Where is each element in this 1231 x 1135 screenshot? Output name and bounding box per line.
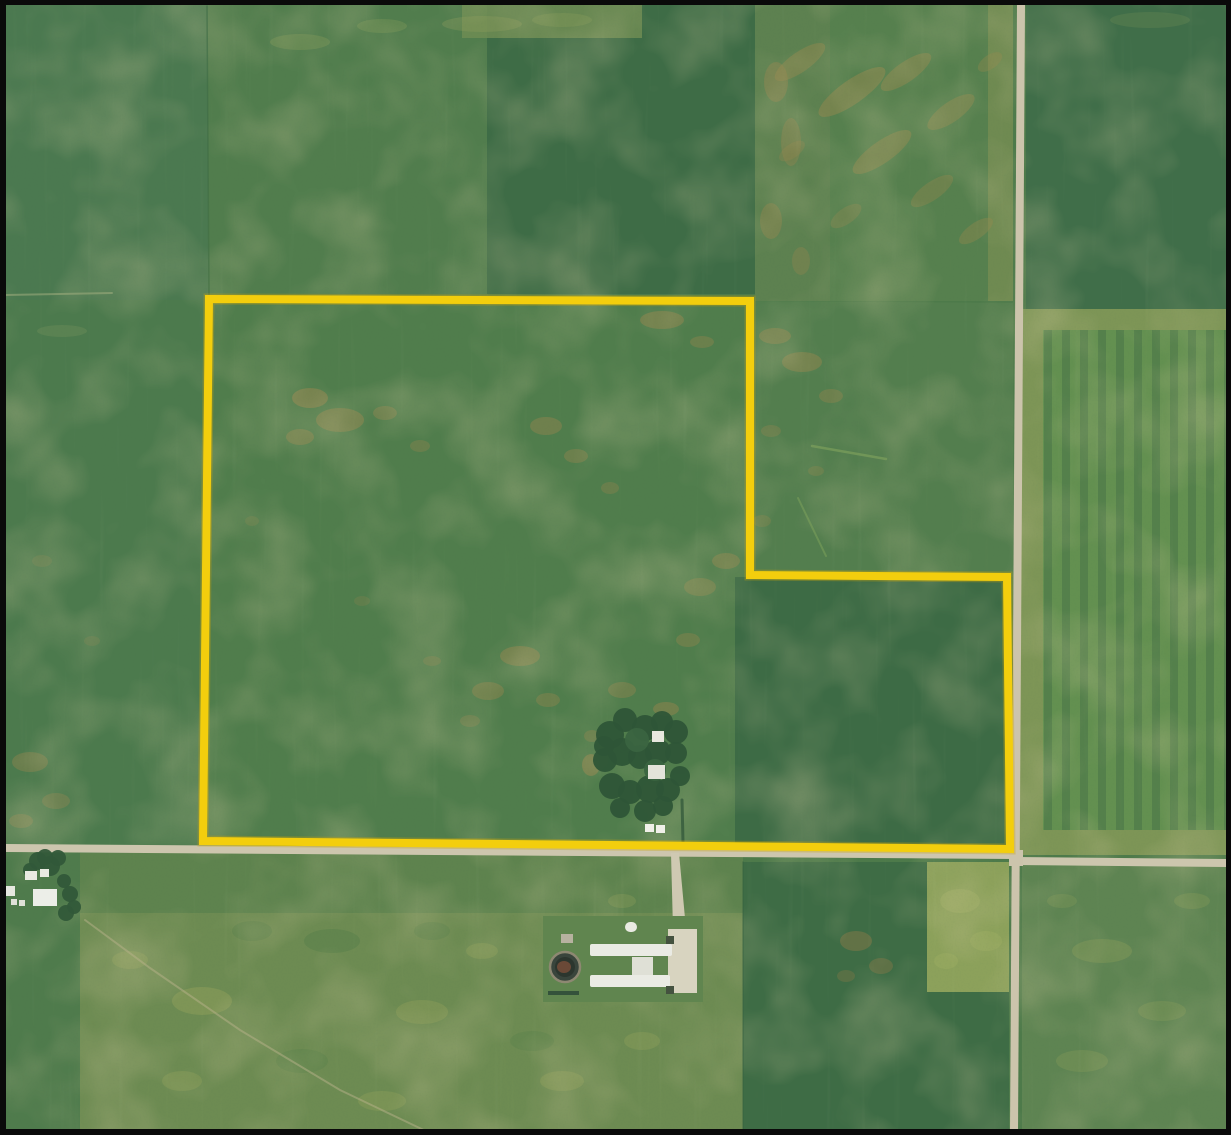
border-bottom [0,1129,1231,1135]
feed-dome [625,922,637,932]
farmstead-bldg-west [6,886,15,896]
vehicle-b [656,825,665,833]
windbreak-hedge [548,991,579,995]
border-top [0,0,1231,5]
farmstead-shed-b [40,869,49,877]
aerial-imagery [0,0,1231,1135]
equip-shed [561,934,573,943]
aerial-parcel-map [0,0,1231,1135]
border-left [0,0,6,1135]
farmstead-dot-b [19,900,25,906]
manure-lagoon [550,952,580,982]
grove-roof-north [652,731,664,742]
barn-north [590,944,672,956]
farmstead-dot-a [11,899,17,905]
vehicle-a [645,824,654,832]
bin-south [666,986,674,994]
grove-roof-south [648,765,665,779]
bin-north [666,936,674,944]
farmstead-barn [33,889,57,906]
grove-lane [682,800,683,842]
barn-south [590,975,670,987]
barn-connector [632,957,653,975]
lagoon-crust [557,961,571,973]
border-right [1226,0,1231,1135]
farmstead-shed-a [25,871,37,880]
